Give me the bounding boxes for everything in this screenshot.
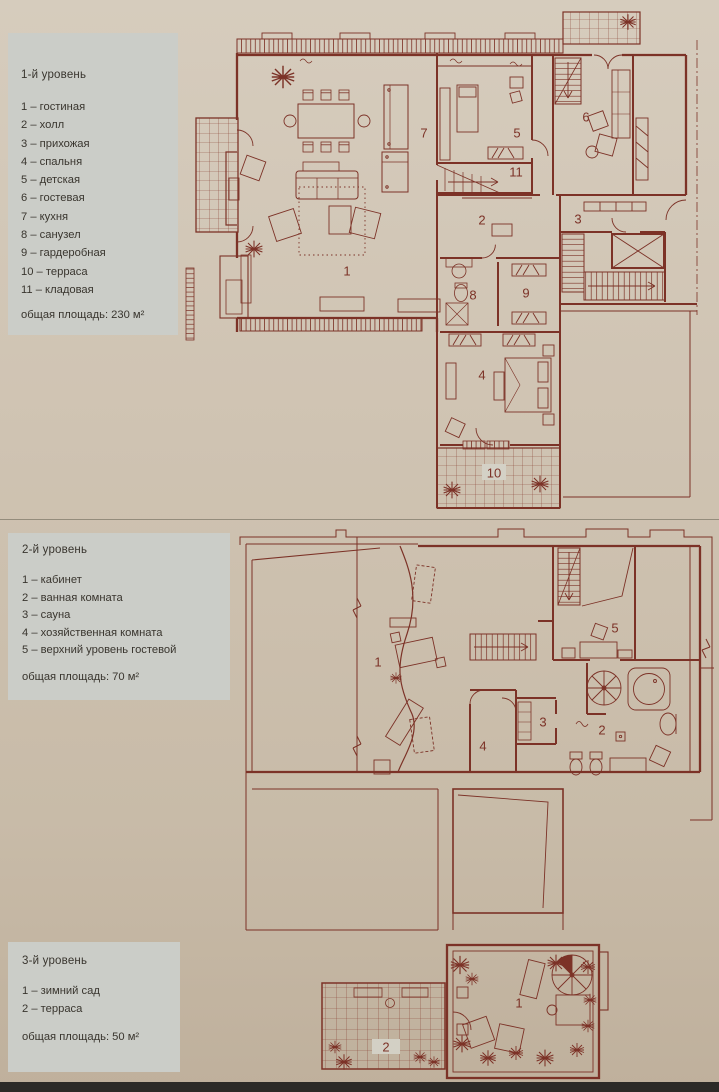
plant-icon [451,956,469,974]
plant-icon [509,1046,523,1060]
plant-icon [329,1041,342,1054]
room-label: 6 [582,110,589,125]
dining-area [284,90,370,152]
void-outline [246,537,438,930]
plant-icon [454,1036,471,1053]
elevator-shaft [612,234,664,268]
room-label: 1 [343,264,350,279]
door-arcs [237,55,686,445]
level-3-room-list: 1 – зимний сад 2 – терраса [22,982,180,1018]
legend-item: 3 – прихожая [21,135,178,153]
level-2-total-area: общая площадь: 70 м² [22,671,230,683]
page-bottom-edge [0,1082,719,1092]
childrens-room-furniture [440,77,523,160]
room-label: 5 [513,126,520,141]
guest-room-furniture [586,70,630,158]
window-seat-bay [220,256,248,318]
level-2-room-list: 1 – кабинет 2 – ванная комната 3 – сауна… [22,572,230,660]
sauna-bench [518,702,531,740]
legend-item: 1 – гостиная [21,98,178,116]
window-band-top [237,33,563,53]
cabinet-furniture [374,565,446,774]
legend-item: 5 – верхний уровень гостевой [22,642,230,660]
curved-balustrade [398,546,414,772]
hall-cabinet [492,224,512,236]
room-label: 2 [478,213,485,228]
bathroom-fixtures [446,258,472,325]
room-label: 4 [479,739,486,754]
plant-icon [532,476,549,493]
thin-lines [690,537,714,820]
room-label: 10 [487,466,501,481]
upper-guest-furniture [562,623,632,658]
spiral-staircase [587,671,621,705]
legend-item: 7 – кухня [21,208,178,226]
plant-icon [620,14,635,29]
window-band-bottom [240,318,422,331]
plant-icon [582,1020,595,1033]
legend-item: 3 – сауна [22,607,230,625]
legend-item: 1 – кабинет [22,572,230,590]
legend-item: 10 – терраса [21,263,178,281]
room-label: 1 [515,996,522,1011]
plant-icon [246,241,263,258]
door-arcs [470,690,588,727]
legend-item: 1 – зимний сад [22,982,180,1000]
legend-level-1: 1-й уровень 1 – гостиная 2 – холл 3 – пр… [8,33,178,335]
legend-item: 6 – гостевая [21,189,178,207]
legend-item: 9 – гардеробная [21,244,178,262]
room-label: 2 [382,1040,389,1055]
bathroom-fixtures [570,668,676,775]
level-1-total-area: общая площадь: 230 м² [21,309,178,321]
legend-level-2: 2-й уровень 1 – кабинет 2 – ванная комна… [8,533,230,700]
plant-icon [444,482,461,499]
storage-stairs [437,165,500,193]
room-label: 2 [598,723,605,738]
legend-item: 8 – санузел [21,226,178,244]
sofa-group [240,155,440,312]
legend-item: 5 – детская [21,171,178,189]
floor-plan-level-2 [230,523,719,937]
stairs-upper-guest [558,548,633,606]
plant-icon [414,1051,427,1064]
roof-extension [453,789,563,930]
level-1-room-list: 1 – гостиная 2 – холл 3 – прихожая 4 – с… [21,98,178,299]
level-3-title: 3-й уровень [22,955,180,967]
level-2-title: 2-й уровень [22,544,230,556]
plant-icon [272,66,294,88]
plant-icon [336,1054,351,1069]
floorplan-page: 1-й уровень 1 – гостиная 2 – холл 3 – пр… [0,0,719,1092]
floor-plan-level-1 [185,5,719,517]
bedroom-furniture [445,345,554,438]
plant-icon [537,1050,554,1067]
room-label: 11 [509,165,523,180]
floor-plan-level-3 [318,940,614,1088]
kitchen-island [382,85,408,192]
side-terrace-grid [196,118,238,232]
room-label: 1 [374,655,381,670]
legend-item: 2 – ванная комната [22,590,230,608]
level-1-title: 1-й уровень [21,69,178,81]
legend-item: 11 – кладовая [21,281,178,299]
plant-icon [428,1056,439,1067]
plant-icon [581,960,595,974]
plant-icon [584,994,597,1007]
legend-item: 4 – хозяйственная комната [22,625,230,643]
plant-icon [548,955,565,972]
level-3-total-area: общая площадь: 50 м² [22,1031,180,1043]
room-label: 5 [611,621,618,636]
parapet-outline [240,529,712,556]
window-band-left [186,268,194,340]
room-label: 8 [469,288,476,303]
room-label: 9 [522,286,529,301]
room-label: 4 [478,368,485,383]
radiator-marks [300,59,522,66]
legend-level-3: 3-й уровень 1 – зимний сад 2 – терраса о… [8,942,180,1072]
room-label: 3 [539,715,546,730]
plant-icon [570,1043,584,1057]
plant-icon [466,973,479,986]
legend-item: 2 – холл [21,116,178,134]
stairs-to-level-2 [555,58,581,104]
legend-item: 4 – спальня [21,153,178,171]
room-label: 7 [420,126,427,141]
terrace-grid [322,983,445,1069]
section-divider [0,519,719,520]
corridor-stairs [470,634,536,660]
plant-icon [390,672,401,683]
legend-item: 2 – терраса [22,1000,180,1018]
plant-icon [480,1050,495,1065]
room-label: 3 [574,212,581,227]
